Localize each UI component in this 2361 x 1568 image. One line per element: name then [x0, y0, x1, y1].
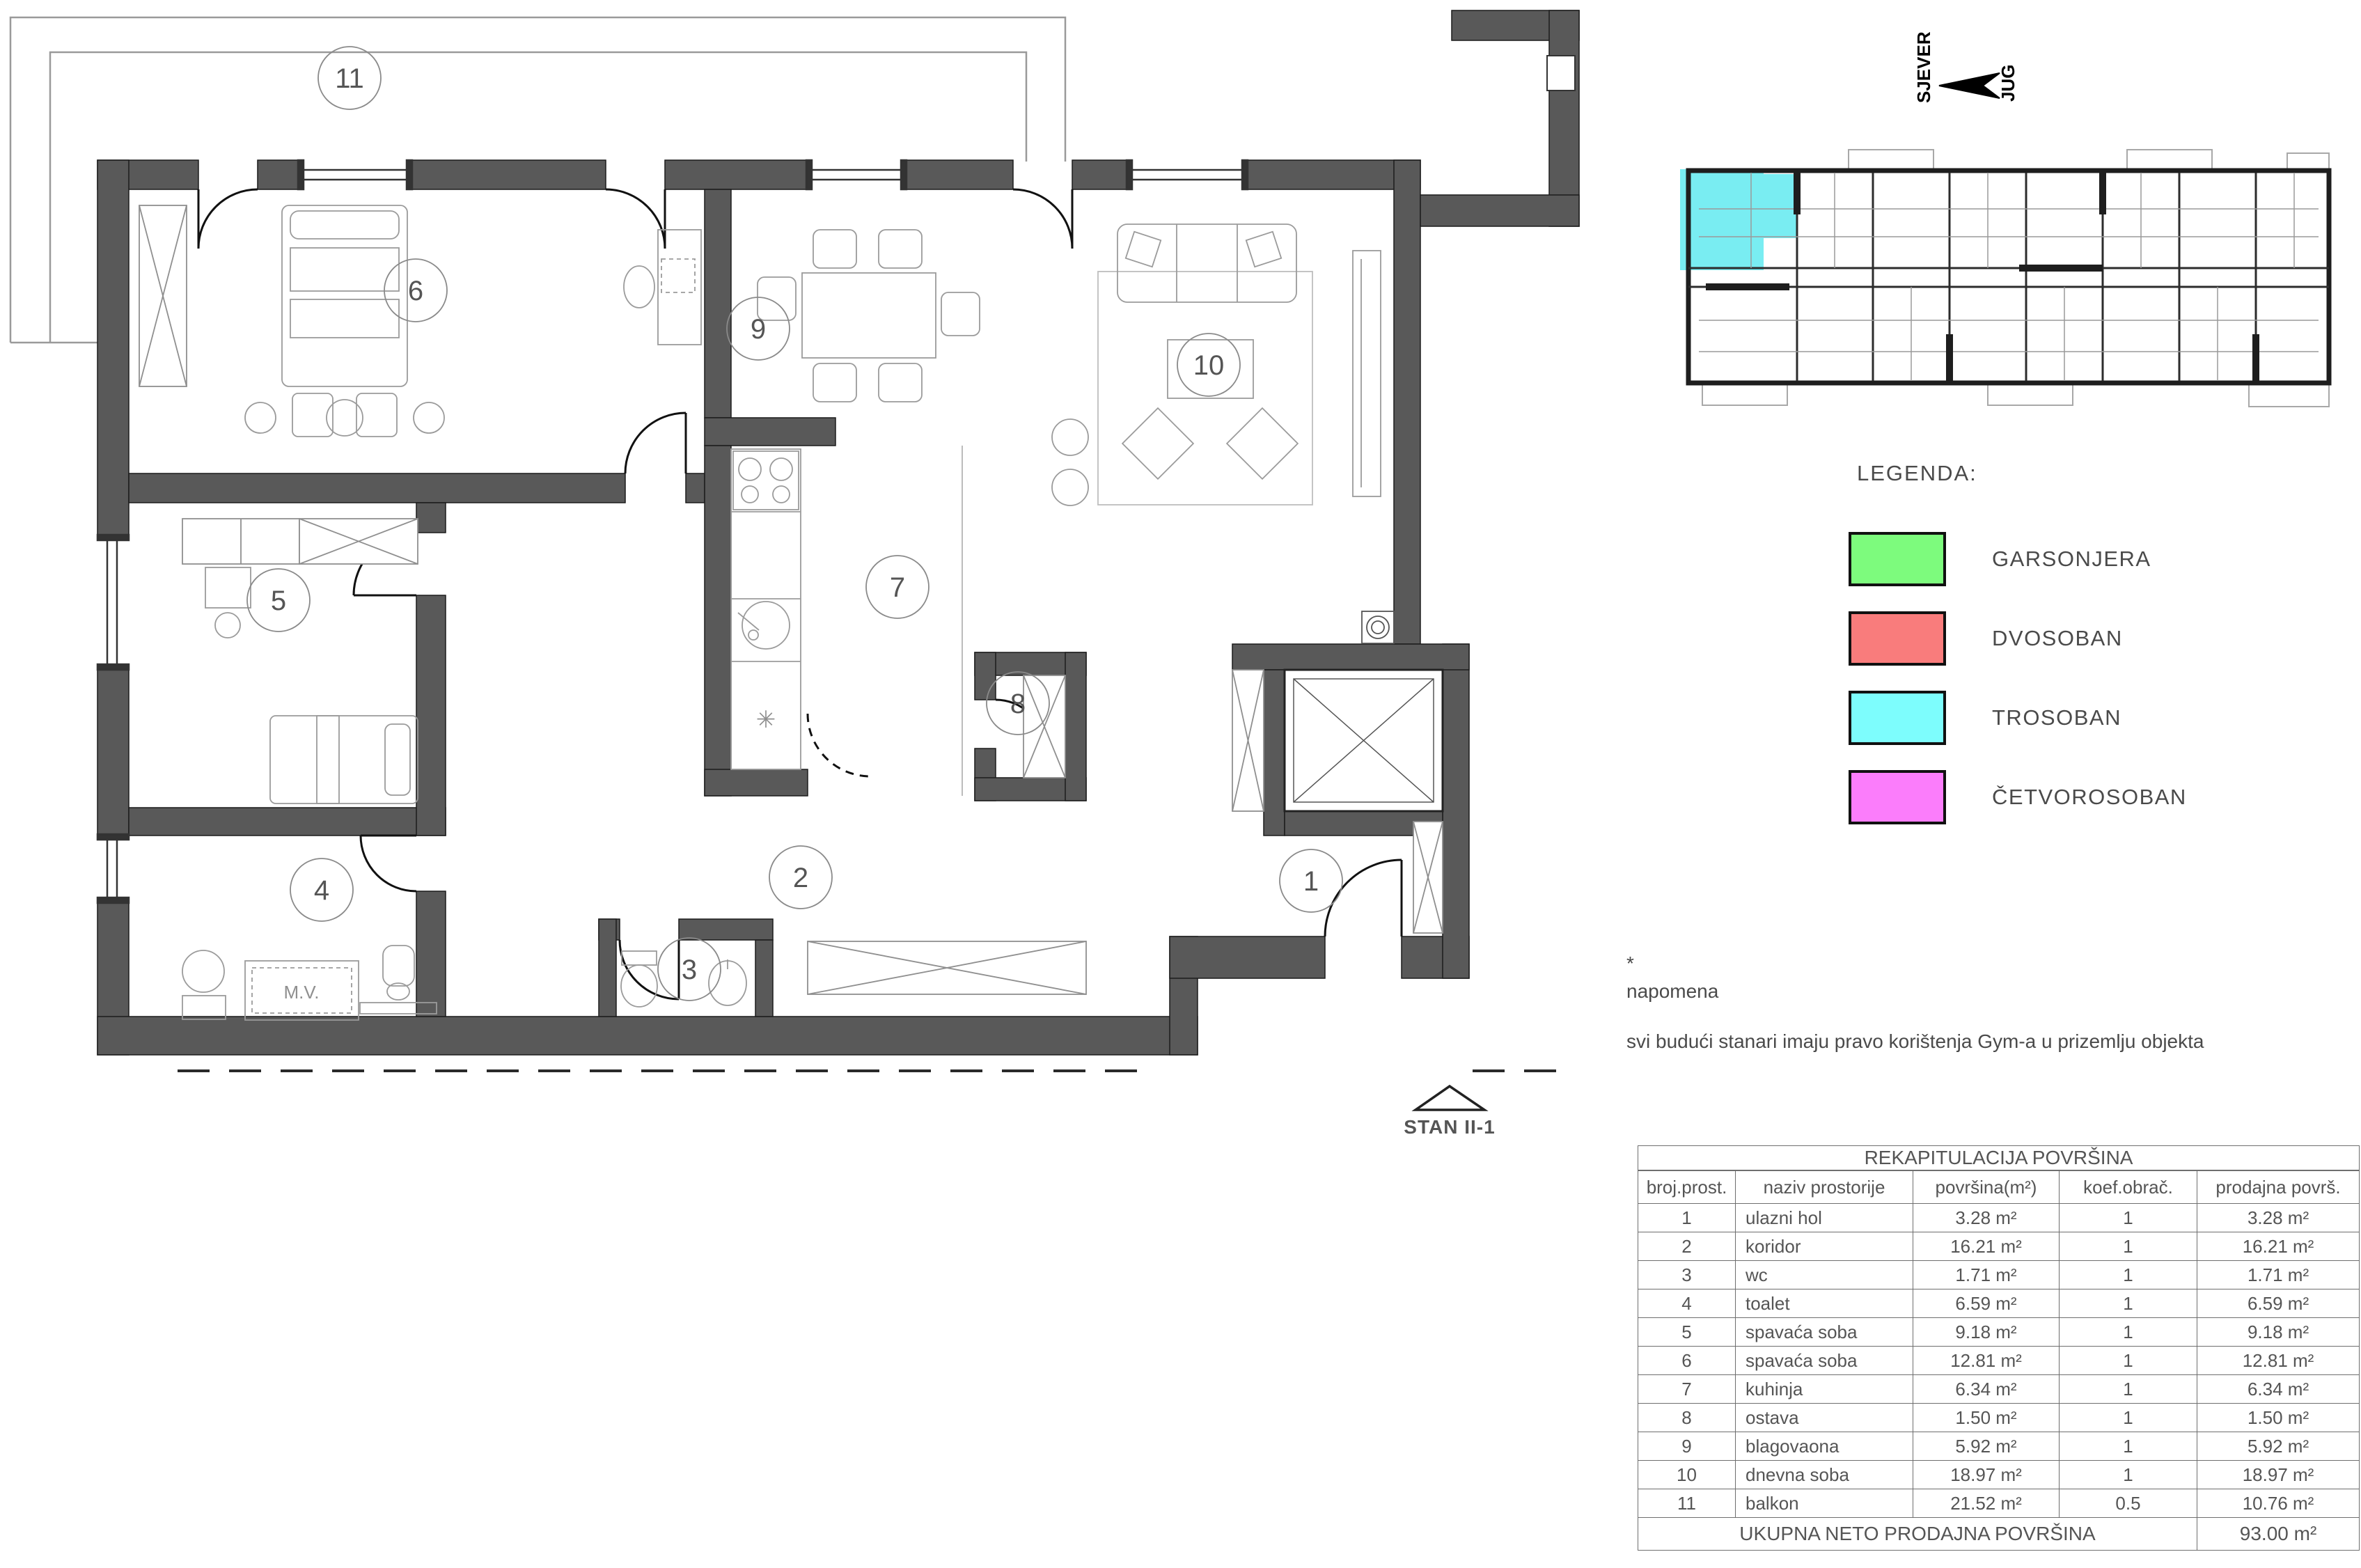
room-number-2: 2: [793, 863, 808, 893]
room-number-7: 7: [890, 572, 905, 603]
note: * napomena svi budući stanari imaju prav…: [1626, 952, 2323, 1053]
recap-col-1: naziv prostorije: [1736, 1170, 1913, 1204]
svg-text:✳: ✳: [756, 707, 776, 733]
elevator-shaft: [1285, 670, 1443, 811]
note-title: napomena: [1626, 980, 2323, 1003]
room-number-1: 1: [1303, 866, 1319, 897]
room-number-3: 3: [682, 955, 697, 985]
table-row: 7kuhinja6.34 m²16.34 m²: [1638, 1375, 2360, 1404]
legend-label-0: GARSONJERA: [1992, 547, 2151, 572]
window-top-2: [806, 160, 907, 189]
closet-entry-hall: [1413, 822, 1443, 933]
desk-room6: [624, 230, 701, 345]
legend-item-četvorosoban: ČETVOROSOBAN: [1849, 770, 2361, 824]
recap-footer-label: UKUPNA NETO PRODAJNA POVRŠINA: [1638, 1518, 2197, 1551]
room-number-8: 8: [1010, 689, 1026, 719]
legend-item-dvosoban: DVOSOBAN: [1849, 611, 2361, 666]
recap-col-2: površina(m²): [1913, 1170, 2060, 1204]
table-row: 9blagovaona5.92 m²15.92 m²: [1638, 1432, 2360, 1461]
recap-col-4: prodajna površ.: [2197, 1170, 2360, 1204]
entrance-marker: STAN II-1: [1404, 1086, 1495, 1138]
recap-table-header: broj.prost.naziv prostorijepovršina(m²)k…: [1638, 1170, 2360, 1204]
closet-corridor-shaft: [1232, 670, 1264, 811]
note-body: svi budući stanari imaju pravo korištenj…: [1626, 1030, 2204, 1052]
window-top-3: [1127, 160, 1248, 189]
table-row: 10dnevna soba18.97 m²118.97 m²: [1638, 1461, 2360, 1489]
legend-label-2: TROSOBAN: [1992, 705, 2121, 730]
legend: LEGENDA: GARSONJERADVOSOBANTROSOBANČETVO…: [1849, 461, 2361, 849]
compass: SJEVER JUG: [1913, 31, 2018, 103]
table-row: 8ostava1.50 m²11.50 m²: [1638, 1404, 2360, 1432]
washing-machine-label: M.V.: [283, 982, 319, 1003]
window-left-1: [97, 535, 129, 670]
room-number-9: 9: [751, 314, 766, 345]
room-number-4: 4: [314, 875, 329, 906]
legend-item-garsonjera: GARSONJERA: [1849, 532, 2361, 586]
north-arrow-icon: [1939, 73, 2000, 98]
table-row: 4toalet6.59 m²16.59 m²: [1638, 1289, 2360, 1318]
kitchen-counter: ✳: [731, 449, 801, 769]
table-row: 5spavaća soba9.18 m²19.18 m²: [1638, 1318, 2360, 1347]
wardrobe-room6: [139, 205, 187, 386]
mini-plan: [1680, 150, 2329, 407]
table-row: 3wc1.71 m²11.71 m²: [1638, 1261, 2360, 1289]
stair-duct-window: [1547, 56, 1575, 91]
note-star: *: [1626, 952, 2323, 975]
table-row: 6spavaća soba12.81 m²112.81 m²: [1638, 1347, 2360, 1375]
unit-label: STAN II-1: [1404, 1116, 1495, 1138]
compass-south-label: JUG: [1998, 65, 2018, 102]
compass-north-label: SJEVER: [1913, 31, 1934, 103]
closet-room8: [1023, 675, 1065, 778]
recap-col-0: broj.prost.: [1638, 1170, 1736, 1204]
room-number-5: 5: [271, 586, 286, 616]
recap-footer-value: 93.00 m²: [2197, 1518, 2360, 1551]
recap-table-title: REKAPITULACIJA POVRŠINA: [1638, 1146, 2360, 1171]
legend-swatch-0: [1849, 532, 1946, 586]
legend-swatch-2: [1849, 691, 1946, 745]
desk-room5: [205, 567, 251, 638]
table-row: 1ulazni hol3.28 m²13.28 m²: [1638, 1204, 2360, 1232]
window-left-2: [97, 834, 129, 903]
room-number-11: 11: [335, 63, 364, 94]
legend-title: LEGENDA:: [1857, 461, 2361, 486]
window-top-1: [298, 160, 412, 189]
legend-item-trosoban: TROSOBAN: [1849, 691, 2361, 745]
closets: [139, 205, 1443, 994]
legend-label-3: ČETVOROSOBAN: [1992, 785, 2187, 810]
closet-corridor-long: [808, 941, 1086, 994]
room-number-10: 10: [1193, 350, 1225, 381]
furniture: ✳: [182, 205, 1394, 1020]
table-row: 11balkon21.52 m²0.510.76 m²: [1638, 1489, 2360, 1518]
legend-label-1: DVOSOBAN: [1992, 626, 2123, 651]
room-number-6: 6: [408, 276, 423, 306]
dining-set: [758, 230, 980, 402]
table-row: 2koridor16.21 m²116.21 m²: [1638, 1232, 2360, 1261]
recap-table: REKAPITULACIJA POVRŠINA broj.prost.naziv…: [1638, 1145, 2360, 1551]
legend-swatch-3: [1849, 770, 1946, 824]
bed-room6: [245, 205, 444, 437]
wardrobe-room5: [182, 519, 418, 564]
recap-col-3: koef.obrač.: [2060, 1170, 2197, 1204]
living-set: [1052, 224, 1394, 643]
legend-swatch-1: [1849, 611, 1946, 666]
bed-room5: [270, 716, 418, 803]
page: ✳: [0, 0, 2361, 1568]
